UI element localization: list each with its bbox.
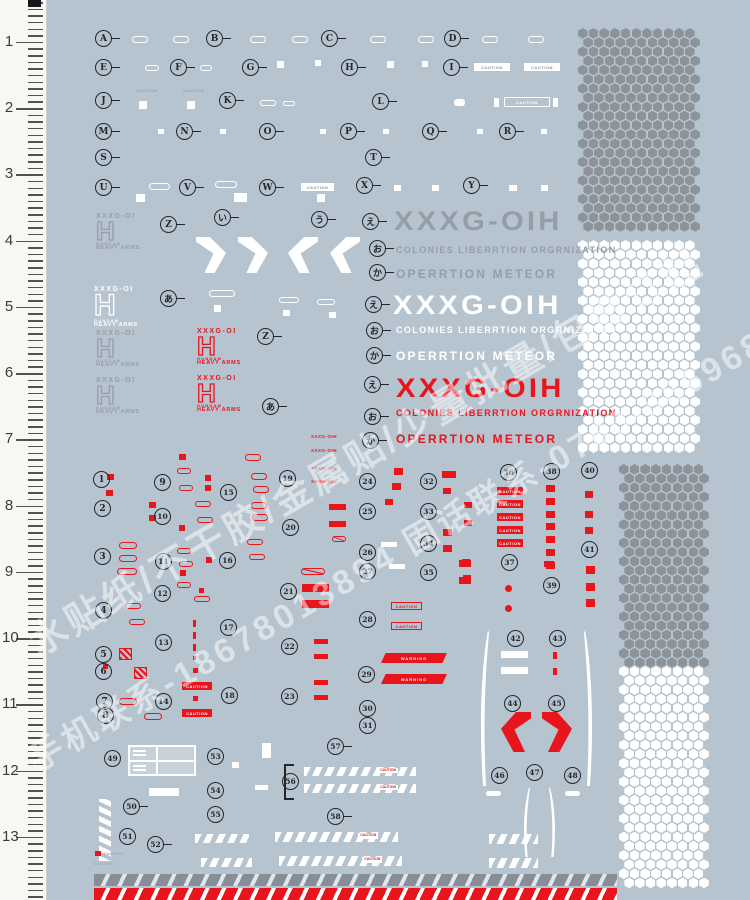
logo-text: H	[197, 382, 241, 404]
hexagon	[651, 464, 661, 475]
hexagon	[640, 684, 650, 695]
hexagon	[624, 547, 634, 558]
decal-wrect	[317, 194, 325, 202]
marker-label: Y	[468, 181, 474, 191]
marker-leader-line	[379, 440, 387, 442]
decal-bar2: CAUTION	[504, 97, 550, 107]
hexagon	[662, 813, 672, 824]
decal-rrect	[95, 851, 101, 856]
hexagon	[653, 424, 663, 435]
title-text: OPERRTION METEOR	[396, 267, 557, 281]
decal-rpill	[194, 596, 210, 602]
hexagon	[589, 314, 599, 325]
hexagon	[648, 360, 658, 371]
hexagon	[689, 730, 699, 741]
hexagon	[648, 249, 658, 260]
decal-marker-12: 12	[154, 585, 171, 602]
hexagon	[648, 415, 658, 426]
hexagon	[630, 850, 640, 861]
hexagon	[685, 332, 695, 343]
hexagon	[669, 433, 679, 444]
hexagon	[648, 184, 658, 195]
hexagon	[651, 703, 661, 714]
hexagon	[669, 74, 679, 85]
hexagon	[669, 341, 679, 352]
hexagon	[694, 519, 704, 530]
hexagon	[646, 620, 656, 631]
decal-wrect	[187, 101, 195, 109]
decal-hzr	[94, 888, 617, 900]
decal-pill	[215, 181, 237, 188]
marker-label: 27	[362, 567, 372, 576]
hexagon	[632, 295, 642, 306]
hexagon	[690, 92, 700, 103]
hexagon	[690, 396, 700, 407]
hexagon	[630, 648, 640, 659]
hexagon	[694, 630, 704, 641]
hexagon	[637, 56, 647, 67]
hexagon	[690, 166, 700, 177]
title-text: OPERRTION METEOR	[396, 349, 557, 363]
marker-leader-line	[187, 67, 195, 69]
logo-text: HEAVY ARMS	[96, 363, 140, 369]
hexagon	[583, 56, 593, 67]
decal-marker-J: J	[95, 92, 112, 109]
hexagon	[605, 166, 615, 177]
decal-wpill	[454, 99, 465, 106]
hexagon	[646, 657, 656, 668]
hexagon	[669, 378, 679, 389]
decal-marker-お: お	[366, 322, 383, 339]
hexagon	[621, 369, 631, 380]
hexagon	[662, 630, 672, 641]
hexagon	[694, 721, 704, 732]
decal-wrect	[277, 61, 284, 68]
hexagon	[683, 556, 693, 567]
hexagon	[619, 538, 629, 549]
gundam-h-logo: XXXG-OIHGUNDAMHEAVY ARMS	[96, 213, 140, 252]
hexagon	[669, 37, 679, 48]
hexagon	[624, 822, 634, 833]
title-text: OPERRTION METEOR	[396, 432, 557, 446]
decal-wrect	[262, 743, 271, 758]
hexagon	[637, 360, 647, 371]
hexagon	[664, 157, 674, 168]
hexagon	[605, 433, 615, 444]
hexagon	[669, 268, 679, 279]
hexagon	[678, 767, 688, 778]
marker-label: V	[184, 183, 191, 193]
hexagon	[664, 424, 674, 435]
hexagon	[674, 295, 684, 306]
hexagon	[653, 212, 663, 223]
decal-wrect	[315, 60, 321, 66]
hexagon	[674, 332, 684, 343]
hexagon	[656, 749, 666, 760]
hexagon	[680, 37, 690, 48]
marker-label: 10	[157, 512, 167, 521]
hexagon	[610, 28, 620, 39]
marker-label: G	[247, 63, 255, 73]
hexagon	[594, 304, 604, 315]
decal-marker-21: 21	[280, 583, 297, 600]
hexagon	[678, 565, 688, 576]
hexagon	[610, 258, 620, 269]
hexagon	[594, 74, 604, 85]
hexagon	[635, 841, 645, 852]
hexagon	[667, 730, 677, 741]
hexagon	[683, 574, 693, 585]
hexagon	[673, 648, 683, 659]
hexagon	[664, 258, 674, 269]
decal-marker-R: R	[499, 123, 516, 140]
hexagon	[594, 111, 604, 122]
hexagon	[662, 501, 672, 512]
decal-chevl	[330, 237, 360, 273]
hexagon	[646, 730, 656, 741]
hexagon	[653, 65, 663, 76]
hexagon	[678, 528, 688, 539]
hexagon	[599, 46, 609, 57]
hexagon	[599, 314, 609, 325]
marker-label: 38	[546, 467, 556, 476]
hexagon	[689, 620, 699, 631]
hexagon	[651, 611, 661, 622]
decal-wrect	[214, 305, 221, 312]
hexagon	[694, 501, 704, 512]
decal-marker-L: L	[372, 93, 389, 110]
hexagon	[583, 148, 593, 159]
marker-label: R	[504, 127, 511, 137]
hexagon	[694, 684, 704, 695]
decal-rbar2: CAUTION	[391, 622, 422, 630]
decal-marker-あ: あ	[262, 398, 279, 415]
hexagon	[685, 138, 695, 149]
hexagon	[640, 556, 650, 567]
hexagon	[664, 277, 674, 288]
hexagon	[694, 648, 704, 659]
blade-decal	[521, 787, 530, 857]
hexagon	[656, 712, 666, 723]
decal-rbar: CAUTION	[497, 539, 523, 547]
hexagon	[658, 37, 668, 48]
decal-bar: CAUTION	[474, 63, 510, 71]
hexagon	[619, 684, 629, 695]
decal-wrect	[494, 98, 499, 107]
hexagon	[635, 639, 645, 650]
hexagon	[656, 730, 666, 741]
decal-stripet: CAUTION	[279, 856, 402, 866]
hexagon	[605, 37, 615, 48]
hexagon	[615, 74, 625, 85]
hexagon	[624, 841, 634, 852]
hexagon	[689, 492, 699, 503]
hexagon	[699, 657, 709, 668]
hexagon	[632, 175, 642, 186]
decal-wrect	[136, 194, 145, 202]
hexagon	[594, 92, 604, 103]
hexagon	[651, 850, 661, 861]
hexagon	[685, 424, 695, 435]
hexagon	[615, 360, 625, 371]
decal-rrect	[199, 588, 204, 593]
decal-rbar2: CAUTION	[391, 602, 422, 610]
hexagon	[610, 212, 620, 223]
decal-marker-Z: Z	[160, 216, 177, 233]
hexagon	[619, 648, 629, 659]
hexagon	[619, 593, 629, 604]
decal-pill	[173, 36, 189, 43]
hexagon	[694, 611, 704, 622]
hexagon	[685, 295, 695, 306]
hexagon	[658, 286, 668, 297]
hexagon	[615, 203, 625, 214]
hexagon	[621, 102, 631, 113]
hexagon	[694, 538, 704, 549]
decal-stripe	[489, 834, 538, 844]
hexagon	[667, 786, 677, 797]
hexagon	[578, 46, 588, 57]
decal-wrect	[381, 542, 397, 547]
logo-text: HEAVY ARMS	[94, 323, 138, 329]
decal-rpill	[119, 698, 137, 705]
hexagon	[680, 378, 690, 389]
marker-label: 50	[126, 802, 136, 811]
hexagon	[648, 323, 658, 334]
hexagon	[594, 184, 604, 195]
decal-hzg	[94, 874, 617, 886]
marker-label: 20	[285, 523, 295, 532]
marker-label: あ	[164, 292, 173, 305]
hexagon	[619, 630, 629, 641]
title-text: XXXG-OIH	[396, 373, 565, 404]
decal-marker-W: W	[259, 179, 276, 196]
hexagon	[673, 850, 683, 861]
hexagon	[646, 694, 656, 705]
hexagon	[578, 120, 588, 131]
hexagon	[630, 776, 640, 787]
marker-leader-line	[439, 131, 447, 133]
hexagon	[619, 703, 629, 714]
hexagon	[599, 138, 609, 149]
decal-bar: CAUTION	[301, 183, 334, 191]
marker-label: 37	[504, 558, 514, 567]
hexagon	[667, 510, 677, 521]
hexagon	[667, 859, 677, 870]
hexagon	[589, 120, 599, 131]
hexagon	[658, 148, 668, 159]
decal-marker-X: X	[356, 177, 373, 194]
hexagon	[594, 396, 604, 407]
hexagon	[664, 350, 674, 361]
marker-label: 16	[222, 556, 232, 565]
decal-marker-B: B	[206, 30, 223, 47]
hexagon	[615, 184, 625, 195]
decal-rrect	[546, 485, 555, 492]
decal-wpill	[565, 791, 580, 796]
hexagon	[656, 822, 666, 833]
hexagon	[637, 378, 647, 389]
logo-text: H	[96, 384, 140, 406]
hexagon	[640, 758, 650, 769]
decal-rpill	[249, 554, 265, 560]
hexagon	[685, 28, 695, 39]
hexagon	[662, 795, 672, 806]
hexagon	[646, 602, 656, 613]
hexagon	[685, 406, 695, 417]
marker-label: 24	[362, 477, 372, 486]
decal-marker-58: 58	[327, 808, 344, 825]
decal-wrect	[133, 765, 146, 767]
marker-leader-line	[373, 185, 381, 187]
hexagon	[632, 83, 642, 94]
hexagon	[653, 194, 663, 205]
hexagon	[642, 83, 652, 94]
decal-rrect	[585, 491, 593, 498]
decal-sheet: CAUTIONCAUTIONCAUTIONCAUTIONCAUTIONCAUTI…	[0, 0, 750, 900]
hexagon	[605, 129, 615, 140]
hexagon	[683, 703, 693, 714]
hexagon	[642, 157, 652, 168]
decal-rpill	[177, 582, 191, 588]
hexagon	[635, 675, 645, 686]
marker-leader-line	[112, 131, 120, 133]
hexagon	[605, 184, 615, 195]
hexagon	[678, 657, 688, 668]
hexagon	[632, 332, 642, 343]
decal-chevl	[288, 237, 318, 273]
hexagon	[656, 841, 666, 852]
hexagon	[678, 749, 688, 760]
hexagon	[651, 648, 661, 659]
decal-marker-41: 41	[581, 541, 598, 558]
hexagon	[626, 323, 636, 334]
decal-wrect	[383, 129, 389, 134]
marker-leader-line	[193, 131, 201, 133]
hexagon	[689, 473, 699, 484]
hexagon	[578, 442, 588, 453]
hexagon	[662, 611, 672, 622]
hexagon	[694, 850, 704, 861]
hexagon	[646, 859, 656, 870]
decal-rrect	[443, 529, 452, 536]
marker-leader-line	[480, 185, 488, 187]
marker-label: 4	[100, 606, 106, 616]
marker-label: 36	[503, 468, 513, 477]
hexagon	[658, 166, 668, 177]
hexagon	[610, 314, 620, 325]
hexagon	[680, 341, 690, 352]
hexagon	[599, 258, 609, 269]
decal-marker-48: 48	[564, 767, 581, 784]
hexagon	[699, 492, 709, 503]
hexagon	[589, 295, 599, 306]
marker-label: 13	[158, 638, 168, 647]
hexagon	[673, 574, 683, 585]
decal-wrect	[220, 129, 226, 134]
hexagon	[683, 501, 693, 512]
decal-marker-31: 31	[359, 717, 376, 734]
hexagon	[578, 83, 588, 94]
hexagon	[678, 510, 688, 521]
hexagon	[683, 593, 693, 604]
decal-marker-い: い	[214, 209, 231, 226]
marker-label: う	[315, 213, 324, 226]
decal-warn: WARNING	[381, 653, 447, 663]
decal-marker-36: 36	[500, 464, 517, 481]
hexagon	[689, 565, 699, 576]
hexagon	[630, 832, 640, 843]
marker-label: Z	[165, 220, 172, 230]
hexagon	[637, 415, 647, 426]
hexagon	[632, 194, 642, 205]
hexagon	[630, 611, 640, 622]
hexagon	[690, 286, 700, 297]
hexagon	[626, 396, 636, 407]
decal-marker-5: 5	[95, 646, 112, 663]
hexagon	[694, 593, 704, 604]
hexagon	[637, 433, 647, 444]
hexagon	[626, 304, 636, 315]
hexagon	[669, 129, 679, 140]
hexagon	[669, 56, 679, 67]
decal-marker-F: F	[170, 59, 187, 76]
decal-rtext: XXXG-OIH	[311, 466, 337, 471]
hexagon	[690, 203, 700, 214]
decal-wrect	[387, 61, 394, 68]
hexagon	[678, 730, 688, 741]
hexagon	[664, 295, 674, 306]
decal-rrect	[546, 562, 555, 569]
hexagon	[648, 268, 658, 279]
hexagon	[658, 129, 668, 140]
hexagon	[690, 184, 700, 195]
marker-leader-line	[231, 217, 239, 219]
decal-wrect	[329, 312, 336, 318]
hexagon	[578, 424, 588, 435]
hexagon	[667, 565, 677, 576]
hexagon	[621, 332, 631, 343]
hexagon	[583, 304, 593, 315]
decal-rrect	[546, 498, 555, 505]
hexagon	[624, 473, 634, 484]
hexagon	[599, 120, 609, 131]
marker-label: Q	[427, 127, 435, 137]
hexagon	[669, 415, 679, 426]
hexagon	[624, 786, 634, 797]
decal-rpill	[179, 485, 193, 491]
hexagon	[583, 184, 593, 195]
hexagon	[630, 574, 640, 585]
marker-leader-line	[516, 131, 524, 133]
hexagon	[635, 528, 645, 539]
hexagon	[658, 341, 668, 352]
decal-marker-34: 34	[420, 535, 437, 552]
hexagon	[667, 528, 677, 539]
hexagon	[699, 639, 709, 650]
decal-pill	[200, 65, 212, 71]
marker-label: 29	[361, 670, 371, 679]
hexagon	[589, 138, 599, 149]
decal-marker-10: 10	[154, 508, 171, 525]
marker-label: N	[180, 127, 188, 137]
hexagon	[637, 203, 647, 214]
hexagon	[637, 249, 647, 260]
decal-marker-53: 53	[207, 748, 224, 765]
hexagon	[678, 675, 688, 686]
hexagon	[678, 712, 688, 723]
hexagon	[610, 46, 620, 57]
